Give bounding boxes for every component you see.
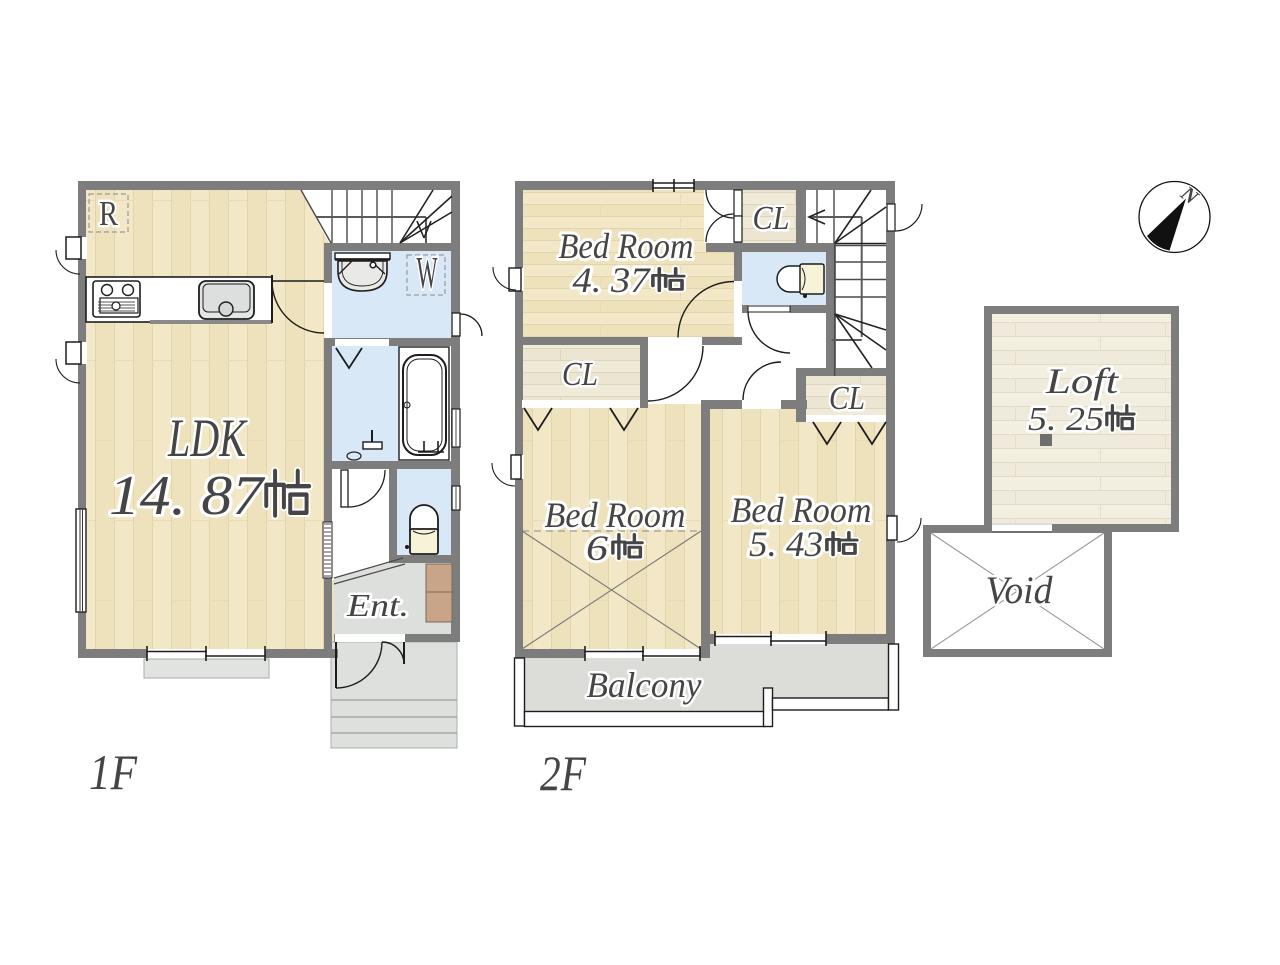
svg-text:5. 43: 5. 43 — [749, 524, 823, 564]
svg-text:CL: CL — [562, 356, 598, 393]
svg-text:1F: 1F — [89, 744, 137, 800]
svg-text:LDK: LDK — [167, 408, 248, 468]
svg-text:6: 6 — [586, 528, 608, 568]
svg-text:Void: Void — [986, 569, 1053, 612]
svg-text:2F: 2F — [540, 745, 586, 801]
svg-text:CL: CL — [753, 200, 790, 237]
svg-text:5. 25: 5. 25 — [1028, 401, 1104, 438]
svg-text:Bed Room: Bed Room — [545, 495, 686, 535]
svg-text:Loft: Loft — [1045, 361, 1119, 401]
svg-text:CL: CL — [829, 380, 865, 417]
svg-text:Ent.: Ent. — [346, 587, 409, 623]
svg-text:R: R — [99, 194, 119, 233]
svg-text:Balcony: Balcony — [587, 665, 702, 705]
svg-text:W: W — [417, 247, 438, 298]
svg-text:4. 37: 4. 37 — [573, 260, 652, 300]
svg-text:14. 87: 14. 87 — [109, 465, 265, 527]
